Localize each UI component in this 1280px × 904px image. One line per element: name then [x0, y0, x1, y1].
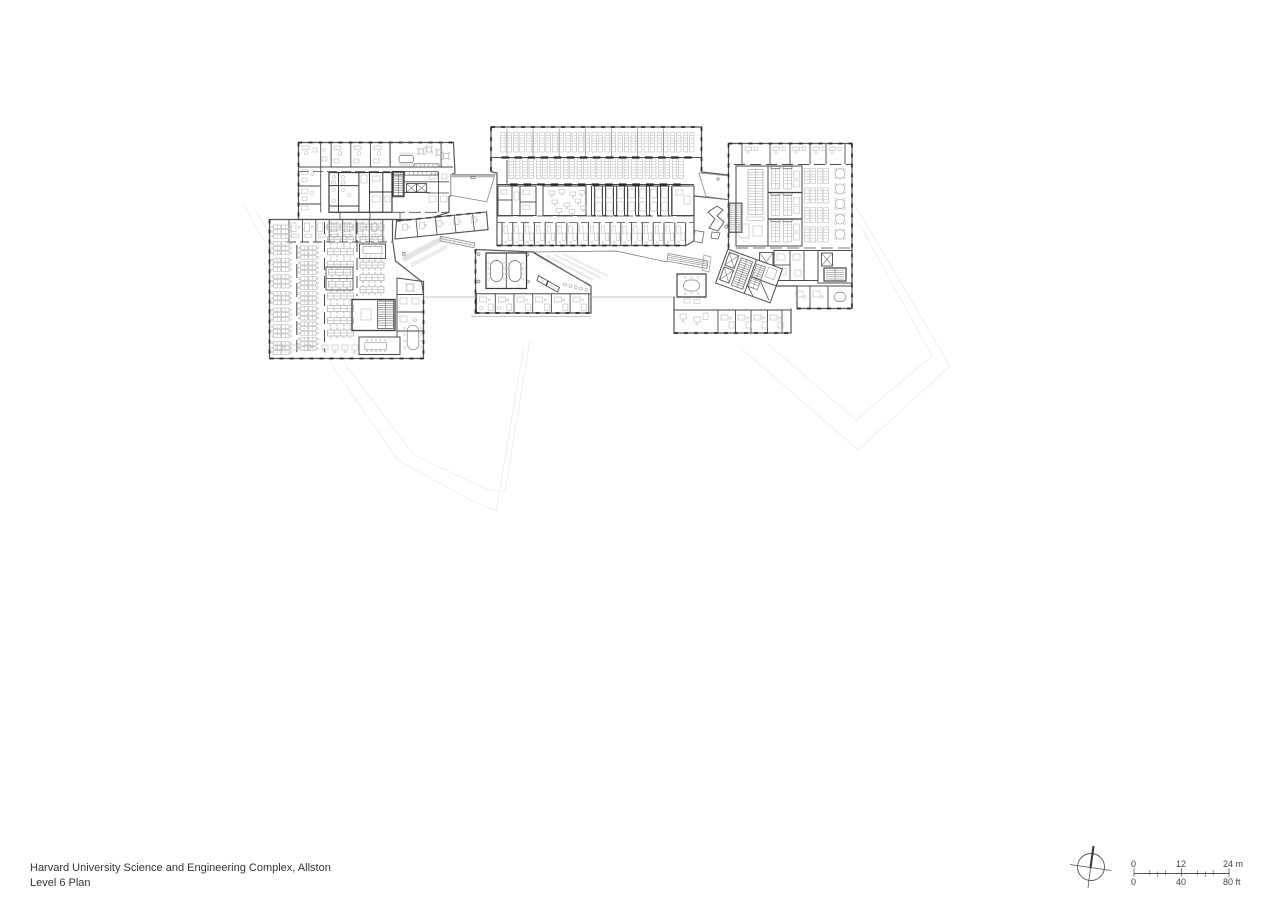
- svg-text:80 ft: 80 ft: [1223, 877, 1241, 887]
- svg-text:40: 40: [1176, 877, 1186, 887]
- svg-text:12: 12: [1176, 859, 1186, 869]
- svg-text:0: 0: [1131, 877, 1136, 887]
- svg-text:0: 0: [1131, 859, 1136, 869]
- svg-text:24 m: 24 m: [1223, 859, 1243, 869]
